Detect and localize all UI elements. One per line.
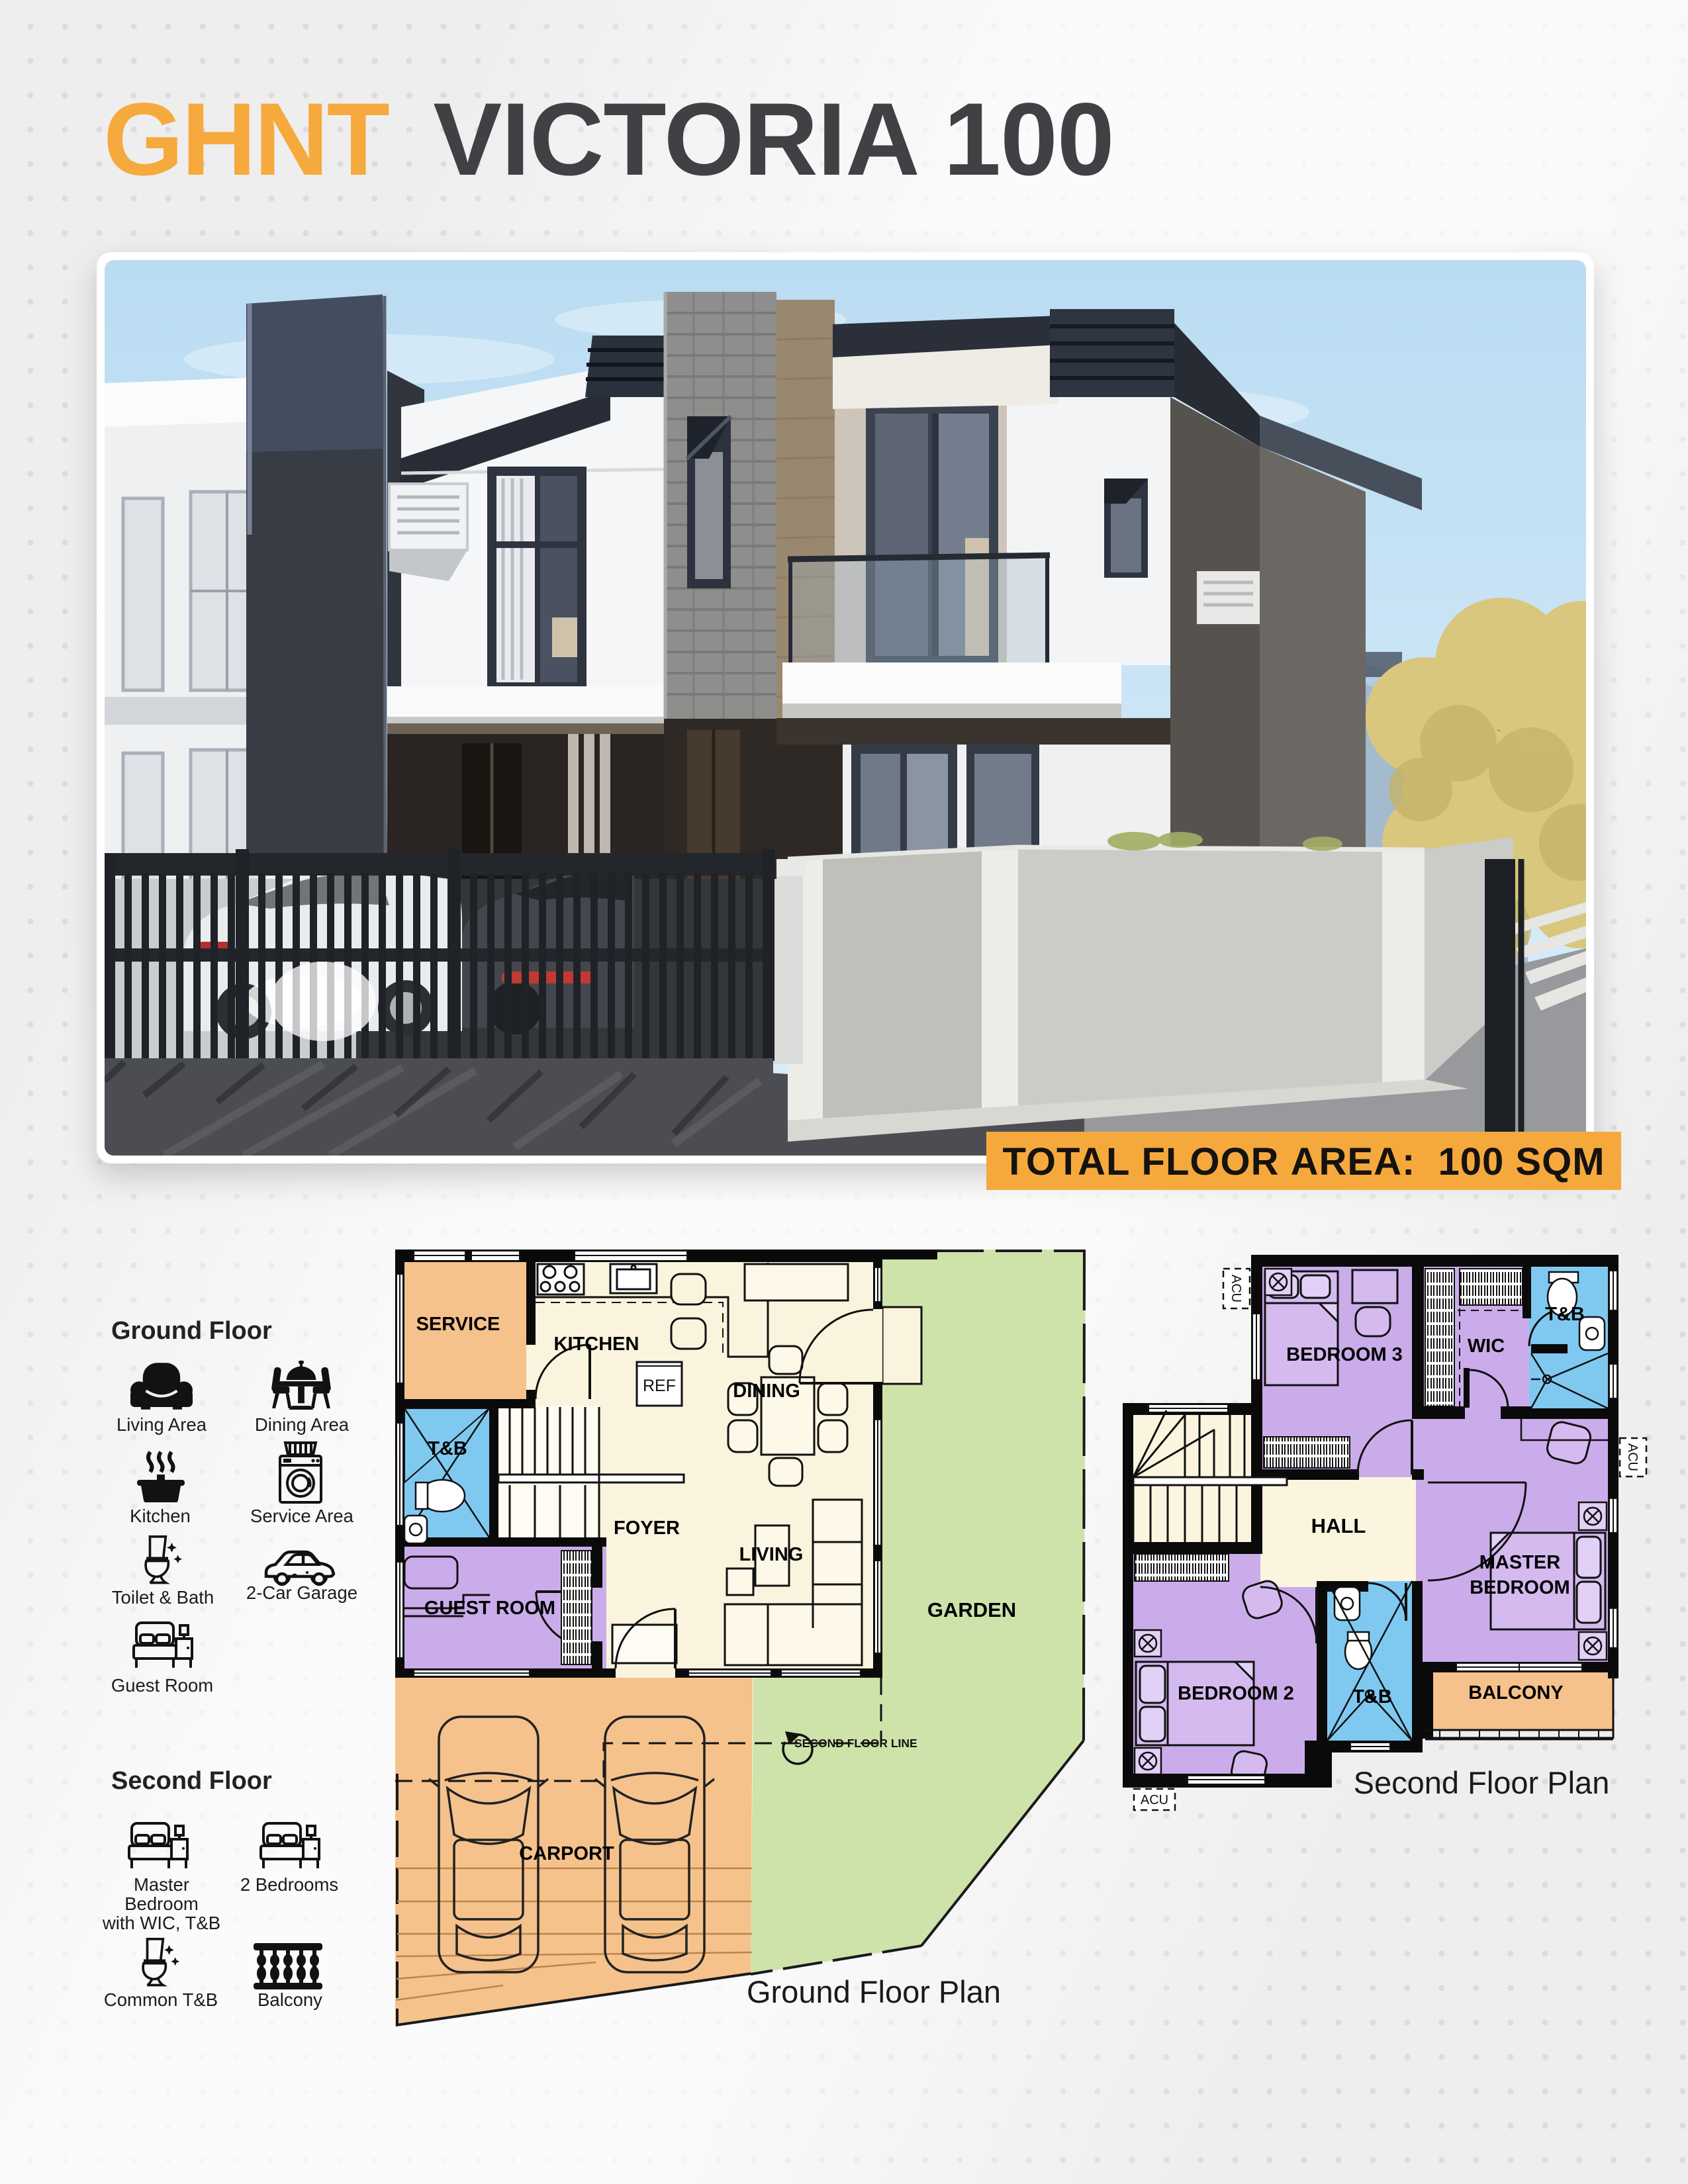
svg-text:DINING: DINING: [733, 1381, 800, 1402]
svg-text:T&B: T&B: [1352, 1686, 1392, 1707]
svg-text:HALL: HALL: [1311, 1514, 1366, 1537]
svg-text:T&B: T&B: [428, 1438, 467, 1459]
svg-text:REF: REF: [643, 1377, 676, 1395]
svg-text:CARPORT: CARPORT: [519, 1843, 614, 1864]
svg-text:GUEST ROOM: GUEST ROOM: [424, 1598, 555, 1619]
svg-text:T&B: T&B: [1545, 1304, 1585, 1325]
svg-text:ACU: ACU: [1141, 1793, 1168, 1807]
svg-text:Second Floor Plan: Second Floor Plan: [1354, 1765, 1610, 1800]
svg-text:ACU: ACU: [1625, 1443, 1640, 1471]
svg-text:Ground Floor Plan: Ground Floor Plan: [747, 1974, 1001, 2009]
svg-text:SECOND FLOOR LINE: SECOND FLOOR LINE: [794, 1737, 917, 1750]
svg-text:GARDEN: GARDEN: [927, 1598, 1016, 1621]
svg-text:BEDROOM 2: BEDROOM 2: [1178, 1683, 1294, 1704]
svg-text:BALCONY: BALCONY: [1468, 1682, 1563, 1704]
svg-text:LIVING: LIVING: [739, 1544, 804, 1565]
svg-text:MASTER: MASTER: [1479, 1552, 1561, 1573]
svg-text:KITCHEN: KITCHEN: [554, 1334, 639, 1355]
svg-text:BEDROOM: BEDROOM: [1470, 1577, 1570, 1598]
svg-text:WIC: WIC: [1468, 1336, 1505, 1357]
svg-text:SERVICE: SERVICE: [416, 1314, 500, 1335]
svg-text:FOYER: FOYER: [614, 1518, 680, 1539]
svg-text:ACU: ACU: [1229, 1275, 1243, 1302]
svg-text:BEDROOM 3: BEDROOM 3: [1286, 1344, 1403, 1365]
